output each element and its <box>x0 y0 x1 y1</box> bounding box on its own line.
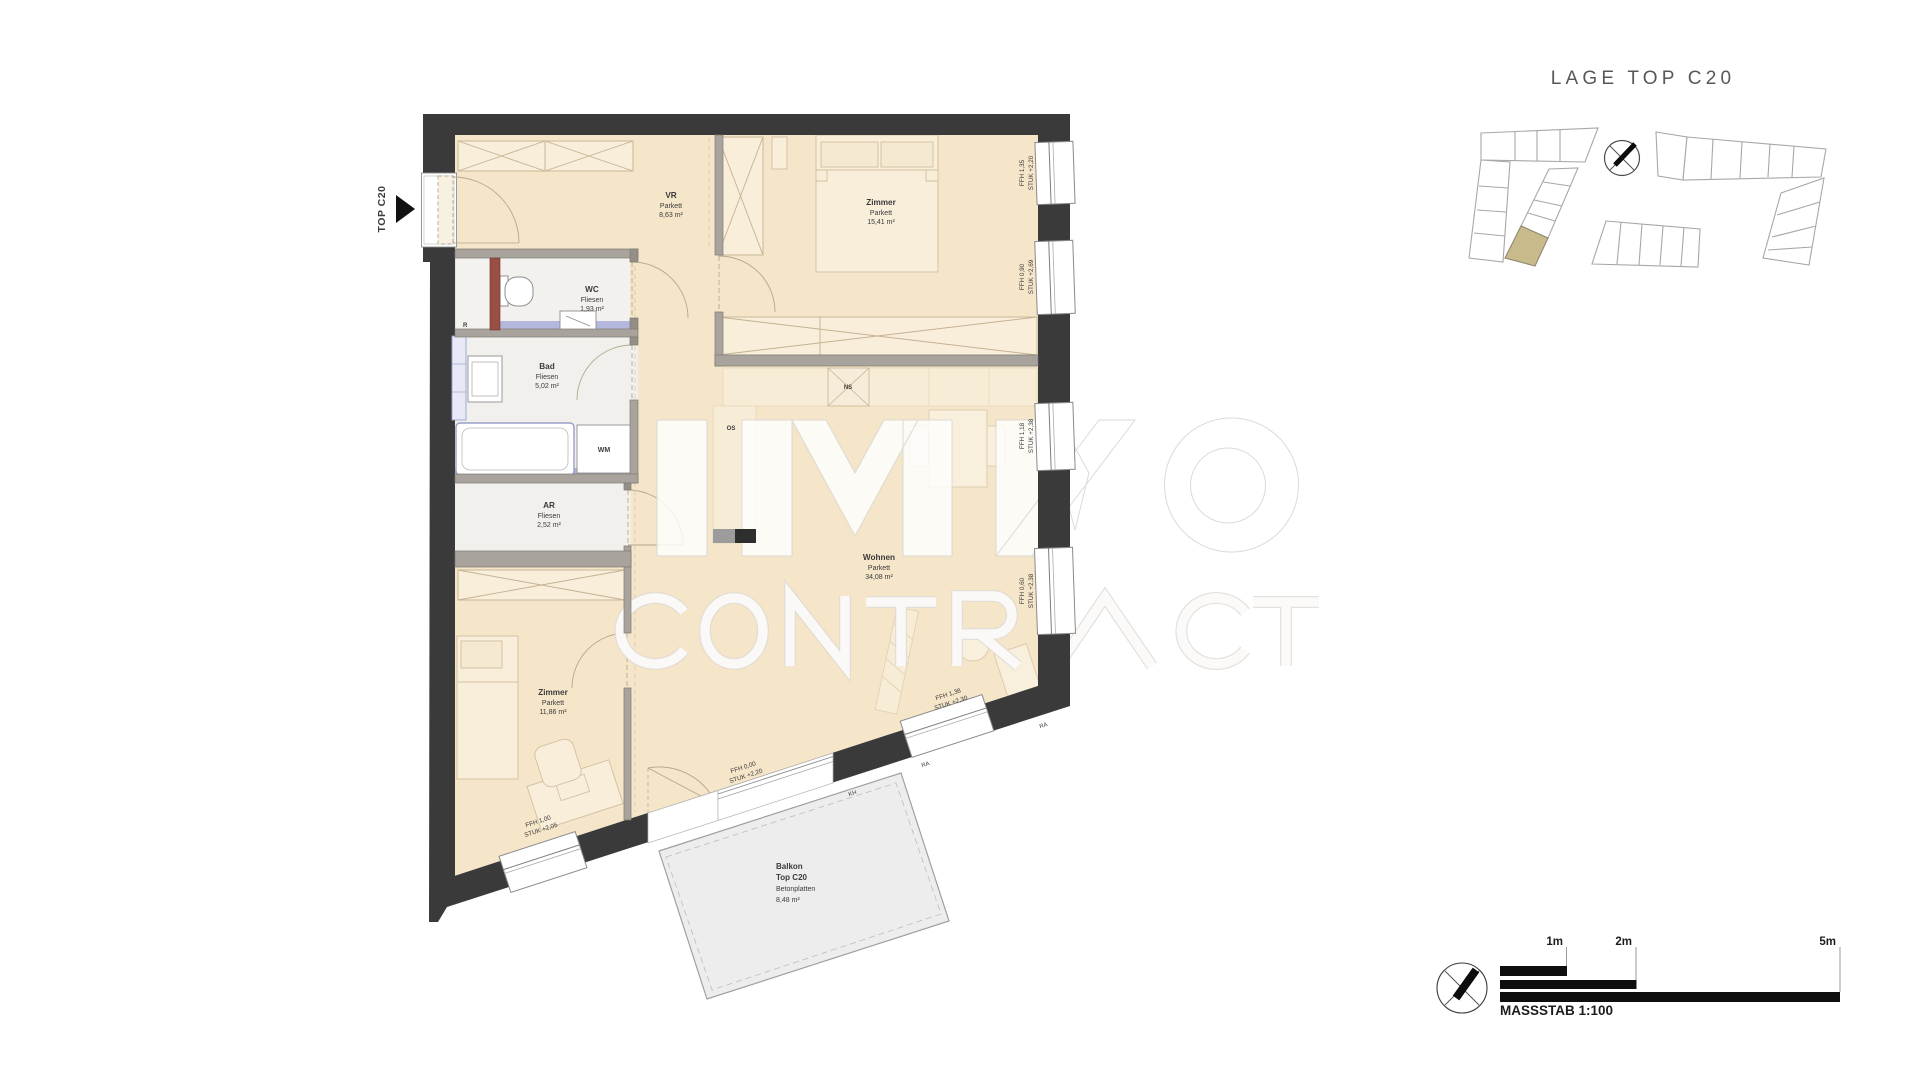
svg-text:VR: VR <box>665 191 676 200</box>
svg-text:5,02 m²: 5,02 m² <box>535 383 559 390</box>
svg-text:WC: WC <box>585 285 599 294</box>
svg-text:AR: AR <box>543 501 555 510</box>
svg-text:Zimmer: Zimmer <box>538 688 568 697</box>
svg-text:8,63 m²: 8,63 m² <box>659 212 683 219</box>
svg-text:RA: RA <box>1039 722 1049 730</box>
svg-text:2m: 2m <box>1615 936 1632 948</box>
svg-text:2,52 m²: 2,52 m² <box>537 522 561 529</box>
svg-text:WM: WM <box>598 447 611 454</box>
svg-text:LAGE TOP C20: LAGE TOP C20 <box>1551 68 1736 89</box>
svg-text:Balkon: Balkon <box>776 862 803 871</box>
svg-text:Bad: Bad <box>539 362 554 371</box>
svg-text:34,08 m²: 34,08 m² <box>865 574 893 581</box>
svg-text:STUK +2,38: STUK +2,38 <box>1028 418 1035 453</box>
svg-text:11,86 m²: 11,86 m² <box>539 709 567 716</box>
svg-text:R: R <box>463 323 468 329</box>
svg-text:FFH 0,90: FFH 0,90 <box>1019 263 1026 290</box>
svg-text:1,93 m²: 1,93 m² <box>580 306 604 313</box>
svg-text:STUK +2,20: STUK +2,20 <box>1028 155 1035 190</box>
svg-text:Fliesen: Fliesen <box>581 297 604 304</box>
svg-text:Parkett: Parkett <box>542 700 564 707</box>
svg-text:Parkett: Parkett <box>868 565 890 572</box>
svg-text:TOP C20: TOP C20 <box>376 186 388 233</box>
svg-text:Top C20: Top C20 <box>776 873 808 882</box>
svg-text:1m: 1m <box>1546 936 1563 948</box>
svg-text:NS: NS <box>844 385 852 391</box>
svg-text:FFH 0,60: FFH 0,60 <box>1019 577 1026 604</box>
svg-text:Fliesen: Fliesen <box>538 513 561 520</box>
svg-text:MASSSTAB 1:100: MASSSTAB 1:100 <box>1500 1003 1613 1018</box>
svg-text:Parkett: Parkett <box>870 210 892 217</box>
svg-text:15,41 m²: 15,41 m² <box>867 219 895 226</box>
svg-text:FFH 1,18: FFH 1,18 <box>1019 422 1026 449</box>
svg-text:Fliesen: Fliesen <box>536 374 559 381</box>
svg-text:STUK +2,38: STUK +2,38 <box>1028 573 1035 608</box>
svg-text:8,48 m²: 8,48 m² <box>776 897 800 904</box>
svg-text:Betonplatten: Betonplatten <box>776 886 815 893</box>
svg-text:STUK +2,69: STUK +2,69 <box>1028 259 1035 294</box>
svg-text:Zimmer: Zimmer <box>866 198 896 207</box>
svg-text:FFH 1,35: FFH 1,35 <box>1019 159 1026 186</box>
svg-text:RA: RA <box>921 761 931 769</box>
svg-text:Parkett: Parkett <box>660 203 682 210</box>
svg-text:OS: OS <box>727 426 736 432</box>
svg-text:Wohnen: Wohnen <box>863 553 895 562</box>
svg-text:5m: 5m <box>1819 936 1836 948</box>
